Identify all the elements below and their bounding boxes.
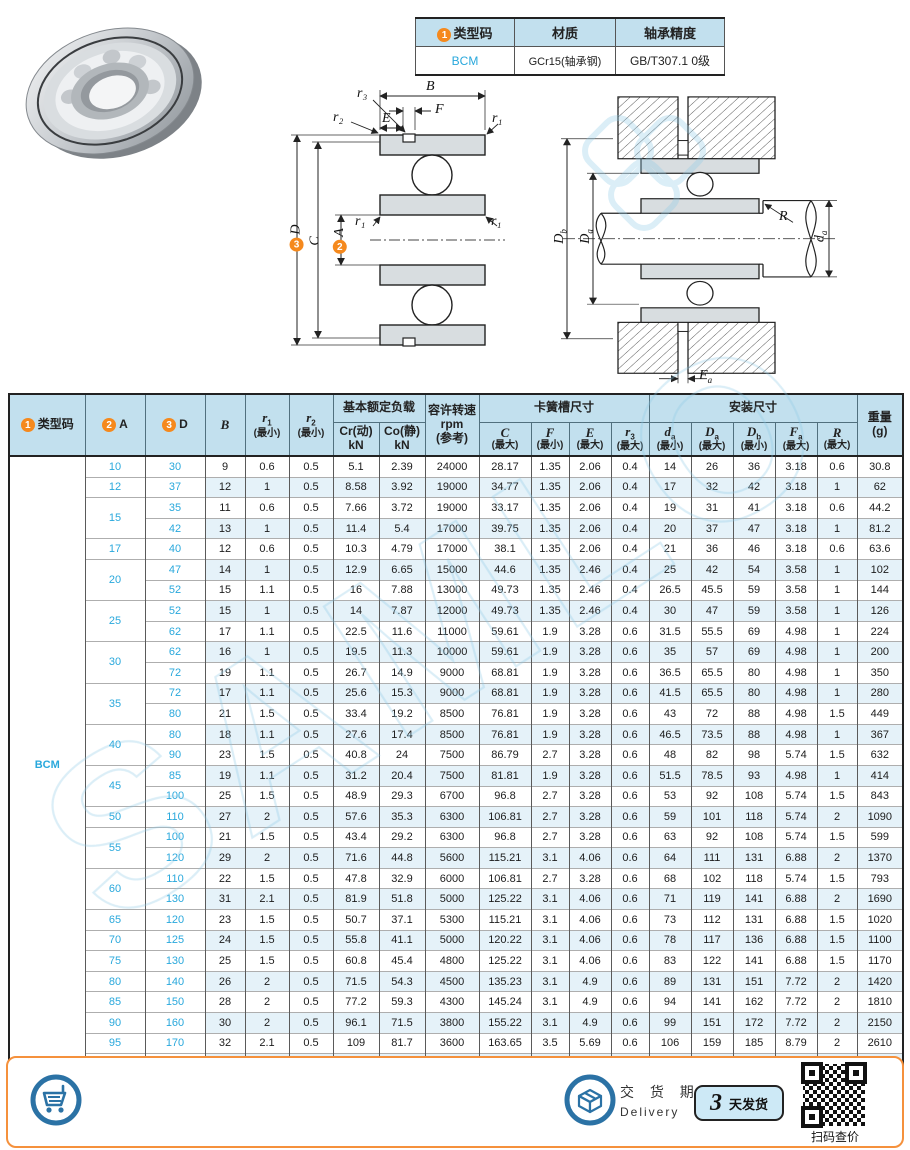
spec-value-cell: 4.9 [569, 992, 611, 1013]
spec-value-cell: 2.06 [569, 456, 611, 477]
spec-value-cell: 8.79 [775, 1033, 817, 1054]
spec-value-cell: 0.6 [611, 807, 649, 828]
spec-value-cell: 31.5 [649, 621, 691, 642]
spec-value-cell: 163.65 [479, 1033, 531, 1054]
spec-value-cell: 10.3 [333, 539, 379, 560]
dim-label-da: da [812, 231, 829, 243]
spec-value-cell: 3.28 [569, 765, 611, 786]
spec-header-cell: 卡簧槽尺寸 [479, 394, 649, 422]
col-a-cell: 50 [85, 807, 145, 828]
dim-label-Da: Da [578, 229, 595, 244]
spec-row: 70125241.50.555.841.15000120.223.14.060.… [9, 930, 903, 951]
spec-value-cell: 59 [733, 601, 775, 622]
spec-value-cell: 55.5 [691, 621, 733, 642]
spec-header-cell: 3D [145, 394, 205, 456]
info-typecode-value[interactable]: BCM [416, 47, 515, 76]
spec-row: 12371210.58.583.921900034.771.352.060.41… [9, 477, 903, 498]
spec-value-cell: 1.1 [245, 662, 289, 683]
spec-value-cell: 0.5 [289, 724, 333, 745]
spec-value-cell: 4.9 [569, 1013, 611, 1034]
col-a-cell: 10 [85, 456, 145, 477]
spec-value-cell: 1 [817, 642, 857, 663]
spec-value-cell: 69 [733, 621, 775, 642]
spec-value-cell: 77.2 [333, 992, 379, 1013]
spec-value-cell: 1 [245, 477, 289, 498]
spec-value-cell: 141 [733, 951, 775, 972]
spec-value-cell: 76.81 [479, 704, 531, 725]
spec-value-cell: 4.98 [775, 704, 817, 725]
spec-value-cell: 0.6 [611, 1033, 649, 1054]
spec-value-cell: 26.5 [649, 580, 691, 601]
spec-value-cell: 6000 [425, 868, 479, 889]
spec-value-cell: 1.9 [531, 642, 569, 663]
spec-value-cell: 162 [733, 992, 775, 1013]
spec-value-cell: 71.6 [333, 848, 379, 869]
spec-value-cell: 115.21 [479, 910, 531, 931]
spec-value-cell: 78 [649, 930, 691, 951]
spec-value-cell: 414 [857, 765, 903, 786]
spec-value-cell: 41.1 [379, 930, 425, 951]
spec-value-cell: 2.7 [531, 807, 569, 828]
spec-value-cell: 5000 [425, 889, 479, 910]
dim-label-E: E [382, 111, 391, 127]
spec-value-cell: 2.06 [569, 539, 611, 560]
spec-value-cell: 3.28 [569, 827, 611, 848]
spec-value-cell: 41 [733, 498, 775, 519]
spec-value-cell: 0.6 [817, 456, 857, 477]
col-a-cell: 75 [85, 951, 145, 972]
spec-value-cell: 24000 [425, 456, 479, 477]
spec-value-cell: 2.46 [569, 559, 611, 580]
spec-value-cell: 2.06 [569, 518, 611, 539]
dim-label-Db: Db [552, 229, 569, 244]
spec-value-cell: 59.3 [379, 992, 425, 1013]
spec-value-cell: 55.8 [333, 930, 379, 951]
spec-value-cell: 1.1 [245, 621, 289, 642]
spec-value-cell: 3.28 [569, 642, 611, 663]
spec-value-cell: 5000 [425, 930, 479, 951]
spec-value-cell: 131 [691, 971, 733, 992]
spec-value-cell: 6.88 [775, 951, 817, 972]
spec-value-cell: 32 [691, 477, 733, 498]
spec-value-cell: 30 [649, 601, 691, 622]
spec-value-cell: 0.6 [817, 498, 857, 519]
spec-value-cell: 7.72 [775, 992, 817, 1013]
spec-value-cell: 2150 [857, 1013, 903, 1034]
bearing-photo [12, 12, 208, 170]
spec-value-cell: 50.7 [333, 910, 379, 931]
spec-value-cell: 46.5 [649, 724, 691, 745]
spec-value-cell: 3.18 [775, 518, 817, 539]
spec-value-cell: 1 [245, 559, 289, 580]
col-d-cell: 37 [145, 477, 205, 498]
spec-row: 30621610.519.511.31000059.611.93.280.635… [9, 642, 903, 663]
spec-value-cell: 7.72 [775, 971, 817, 992]
spec-value-cell: 14 [333, 601, 379, 622]
col-a-cell: 80 [85, 971, 145, 992]
col-d-cell: 90 [145, 745, 205, 766]
spec-header-cell: E(最大) [569, 422, 611, 456]
spec-value-cell: 19 [205, 662, 245, 683]
spec-value-cell: 120.22 [479, 930, 531, 951]
spec-value-cell: 7.87 [379, 601, 425, 622]
spec-value-cell: 159 [691, 1033, 733, 1054]
spec-value-cell: 0.6 [611, 642, 649, 663]
spec-value-cell: 47.8 [333, 868, 379, 889]
spec-value-cell: 36.5 [649, 662, 691, 683]
spec-value-cell: 43 [649, 704, 691, 725]
spec-value-cell: 4300 [425, 992, 479, 1013]
spec-header-cell: 容许转速rpm(参考) [425, 394, 479, 456]
catalog-page: 1类型码 材质 轴承精度 BCM GCr15(轴承钢) GB/T307.1 0级 [0, 0, 910, 1150]
spec-value-cell: 35.3 [379, 807, 425, 828]
spec-value-cell: 0.5 [289, 704, 333, 725]
spec-value-cell: 1.35 [531, 518, 569, 539]
info-header-typecode: 1类型码 [416, 18, 515, 47]
spec-value-cell: 200 [857, 642, 903, 663]
spec-value-cell: 0.6 [245, 498, 289, 519]
spec-value-cell: 26 [691, 456, 733, 477]
spec-value-cell: 16 [205, 642, 245, 663]
spec-value-cell: 2 [817, 807, 857, 828]
delivery-en: Delivery [620, 1103, 700, 1121]
spec-value-cell: 0.6 [611, 621, 649, 642]
spec-header-cell: r1(最小) [245, 394, 289, 456]
spec-header-cell: da(最小) [649, 422, 691, 456]
spec-value-cell: 3.1 [531, 848, 569, 869]
spec-value-cell: 0.5 [289, 456, 333, 477]
spec-header-cell: F(最小) [531, 422, 569, 456]
spec-value-cell: 1 [245, 642, 289, 663]
spec-value-cell: 45.5 [691, 580, 733, 601]
spec-value-cell: 7.88 [379, 580, 425, 601]
spec-value-cell: 0.5 [289, 642, 333, 663]
spec-value-cell: 151 [691, 1013, 733, 1034]
spec-value-cell: 96.1 [333, 1013, 379, 1034]
spec-value-cell: 25 [649, 559, 691, 580]
spec-value-cell: 2.1 [245, 1033, 289, 1054]
spec-value-cell: 83 [649, 951, 691, 972]
spec-row: 25521510.5147.871200049.731.352.460.4304… [9, 601, 903, 622]
spec-value-cell: 2 [245, 971, 289, 992]
spec-row: 3572171.10.525.615.3900068.811.93.280.64… [9, 683, 903, 704]
spec-value-cell: 2.7 [531, 745, 569, 766]
spec-value-cell: 1 [817, 683, 857, 704]
col-d-cell: 120 [145, 910, 205, 931]
spec-value-cell: 29.3 [379, 786, 425, 807]
spec-value-cell: 108 [733, 827, 775, 848]
spec-value-cell: 5.74 [775, 745, 817, 766]
col-d-cell: 62 [145, 642, 205, 663]
spec-value-cell: 350 [857, 662, 903, 683]
spec-value-cell: 3.28 [569, 724, 611, 745]
spec-value-cell: 8500 [425, 704, 479, 725]
spec-value-cell: 14 [205, 559, 245, 580]
spec-value-cell: 5.1 [333, 456, 379, 477]
col-a-cell: 20 [85, 559, 145, 600]
delivery-days-value: 3 [710, 1090, 722, 1117]
spec-table: 1类型码2A3DBr1(最小)r2(最小)基本额定负载容许转速rpm(参考)卡簧… [8, 393, 904, 1076]
spec-value-cell: 106.81 [479, 807, 531, 828]
spec-value-cell: 59.61 [479, 642, 531, 663]
spec-value-cell: 122 [691, 951, 733, 972]
spec-value-cell: 26 [205, 971, 245, 992]
col-d-cell: 150 [145, 992, 205, 1013]
spec-value-cell: 4.98 [775, 765, 817, 786]
spec-value-cell: 88 [733, 704, 775, 725]
spec-value-cell: 0.5 [289, 992, 333, 1013]
spec-value-cell: 2.1 [245, 889, 289, 910]
spec-value-cell: 0.5 [289, 827, 333, 848]
spec-value-cell: 37.1 [379, 910, 425, 931]
spec-value-cell: 53 [649, 786, 691, 807]
spec-value-cell: 68 [649, 868, 691, 889]
installation-diagram-graphic [553, 86, 845, 386]
spec-value-cell: 2 [817, 1013, 857, 1034]
spec-value-cell: 6.65 [379, 559, 425, 580]
spec-value-cell: 71 [649, 889, 691, 910]
spec-value-cell: 36 [691, 539, 733, 560]
spec-value-cell: 0.4 [611, 539, 649, 560]
spec-value-cell: 64 [649, 848, 691, 869]
spec-value-cell: 78.5 [691, 765, 733, 786]
spec-row: 1535110.60.57.663.721900033.171.352.060.… [9, 498, 903, 519]
spec-value-cell: 2.7 [531, 786, 569, 807]
spec-row: 901603020.596.171.53800155.223.14.90.699… [9, 1013, 903, 1034]
col-d-cell: 100 [145, 827, 205, 848]
spec-value-cell: 0.5 [289, 745, 333, 766]
spec-row: 1740120.60.510.34.791700038.11.352.060.4… [9, 539, 903, 560]
spec-value-cell: 20 [649, 518, 691, 539]
col-d-cell: 62 [145, 621, 205, 642]
spec-value-cell: 1.5 [817, 930, 857, 951]
spec-value-cell: 0.5 [289, 910, 333, 931]
spec-value-cell: 81.9 [333, 889, 379, 910]
spec-value-cell: 125.22 [479, 951, 531, 972]
installation-diagram: Db Da da R Fa [553, 86, 845, 386]
spec-value-cell: 15 [205, 580, 245, 601]
col-d-cell: 85 [145, 765, 205, 786]
spec-value-cell: 94 [649, 992, 691, 1013]
spec-value-cell: 11.4 [333, 518, 379, 539]
spec-row: 75130251.50.560.845.44800125.223.14.060.… [9, 951, 903, 972]
spec-table-wrap: 1类型码2A3DBr1(最小)r2(最小)基本额定负载容许转速rpm(参考)卡簧… [8, 393, 904, 1076]
spec-value-cell: 72 [691, 704, 733, 725]
type-code-cell[interactable]: BCM [9, 456, 85, 1075]
spec-value-cell: 0.5 [289, 539, 333, 560]
spec-value-cell: 144 [857, 580, 903, 601]
spec-value-cell: 108 [733, 786, 775, 807]
spec-value-cell: 24 [379, 745, 425, 766]
spec-value-cell: 7.72 [775, 1013, 817, 1034]
spec-value-cell: 1.9 [531, 662, 569, 683]
spec-value-cell: 12 [205, 539, 245, 560]
spec-value-cell: 0.5 [289, 1013, 333, 1034]
spec-value-cell: 280 [857, 683, 903, 704]
col-a-cell: 95 [85, 1033, 145, 1054]
spec-header-cell: 重量(g) [857, 394, 903, 456]
spec-value-cell: 4.06 [569, 910, 611, 931]
qr-caption: 扫码查价 [795, 1128, 875, 1145]
spec-value-cell: 3.28 [569, 683, 611, 704]
spec-value-cell: 40.8 [333, 745, 379, 766]
spec-value-cell: 109 [333, 1033, 379, 1054]
col-d-cell: 40 [145, 539, 205, 560]
spec-value-cell: 1.5 [245, 910, 289, 931]
spec-value-cell: 19.2 [379, 704, 425, 725]
info-row: BCM GCr15(轴承钢) GB/T307.1 0级 [416, 47, 725, 76]
spec-value-cell: 92 [691, 786, 733, 807]
spec-value-cell: 27.6 [333, 724, 379, 745]
spec-row: 801402620.571.554.34500135.233.14.90.689… [9, 971, 903, 992]
spec-value-cell: 82 [691, 745, 733, 766]
col-a-cell: 70 [85, 930, 145, 951]
dim-label-R: R [779, 209, 788, 225]
spec-value-cell: 1.5 [245, 951, 289, 972]
spec-value-cell: 1.5 [245, 786, 289, 807]
col-d-cell: 120 [145, 848, 205, 869]
col-d-cell: 72 [145, 683, 205, 704]
spec-value-cell: 1.9 [531, 683, 569, 704]
spec-value-cell: 12.9 [333, 559, 379, 580]
spec-value-cell: 1.9 [531, 704, 569, 725]
spec-value-cell: 57.6 [333, 807, 379, 828]
spec-value-cell: 1.9 [531, 765, 569, 786]
spec-value-cell: 0.4 [611, 580, 649, 601]
spec-header-cell: Fa(最大) [775, 422, 817, 456]
spec-value-cell: 0.5 [289, 786, 333, 807]
spec-value-cell: 2.7 [531, 827, 569, 848]
spec-value-cell: 38.1 [479, 539, 531, 560]
spec-value-cell: 4.98 [775, 662, 817, 683]
col-a-cell: 65 [85, 910, 145, 931]
spec-value-cell: 0.6 [245, 539, 289, 560]
spec-value-cell: 6.88 [775, 848, 817, 869]
spec-value-cell: 1 [817, 765, 857, 786]
spec-value-cell: 30.8 [857, 456, 903, 477]
spec-value-cell: 1 [817, 724, 857, 745]
col-d-cell: 52 [145, 580, 205, 601]
spec-header-cell: 1类型码 [9, 394, 85, 456]
spec-value-cell: 93 [733, 765, 775, 786]
spec-value-cell: 172 [733, 1013, 775, 1034]
spec-value-cell: 15000 [425, 559, 479, 580]
spec-value-cell: 1 [817, 477, 857, 498]
spec-value-cell: 1370 [857, 848, 903, 869]
spec-value-cell: 3.1 [531, 992, 569, 1013]
spec-value-cell: 57 [691, 642, 733, 663]
spec-value-cell: 1 [817, 621, 857, 642]
spec-value-cell: 60.8 [333, 951, 379, 972]
spec-value-cell: 1.5 [245, 930, 289, 951]
marker-3-icon: 3 [290, 238, 304, 252]
spec-value-cell: 2.7 [531, 868, 569, 889]
spec-value-cell: 63 [649, 827, 691, 848]
info-material-value: GCr15(轴承钢) [515, 47, 616, 76]
spec-value-cell: 3.1 [531, 971, 569, 992]
spec-value-cell: 0.5 [289, 848, 333, 869]
spec-value-cell: 2.39 [379, 456, 425, 477]
spec-value-cell: 5600 [425, 848, 479, 869]
spec-value-cell: 80 [733, 662, 775, 683]
dim-label-r1-right: r₁ [491, 214, 501, 230]
col-d-cell: 80 [145, 724, 205, 745]
spec-value-cell: 0.5 [289, 662, 333, 683]
spec-value-cell: 11000 [425, 621, 479, 642]
spec-value-cell: 89 [649, 971, 691, 992]
spec-value-cell: 24 [205, 930, 245, 951]
spec-value-cell: 5.74 [775, 827, 817, 848]
col-a-cell: 15 [85, 498, 145, 539]
spec-value-cell: 102 [691, 868, 733, 889]
spec-value-cell: 2.46 [569, 601, 611, 622]
spec-value-cell: 59.61 [479, 621, 531, 642]
spec-value-cell: 3.28 [569, 868, 611, 889]
spec-value-cell: 8.58 [333, 477, 379, 498]
section-diagram: B F E r₃ r₂ r₁ r₁ r₁ 3D C 2A [285, 80, 515, 348]
spec-value-cell: 0.4 [611, 601, 649, 622]
spec-value-cell: 843 [857, 786, 903, 807]
spec-value-cell: 5.69 [569, 1033, 611, 1054]
spec-value-cell: 1.5 [817, 786, 857, 807]
spec-value-cell: 5300 [425, 910, 479, 931]
spec-value-cell: 106.81 [479, 868, 531, 889]
spec-header-cell: Cr(动)kN [333, 422, 379, 456]
spec-value-cell: 1.35 [531, 539, 569, 560]
spec-row: BCM103090.60.55.12.392400028.171.352.060… [9, 456, 903, 477]
spec-value-cell: 3.58 [775, 580, 817, 601]
spec-value-cell: 6.88 [775, 910, 817, 931]
spec-value-cell: 1020 [857, 910, 903, 931]
spec-value-cell: 3.5 [531, 1033, 569, 1054]
spec-row: 501102720.557.635.36300106.812.73.280.65… [9, 807, 903, 828]
dim-label-A: 2A [332, 228, 348, 254]
spec-value-cell: 1.35 [531, 477, 569, 498]
spec-value-cell: 126 [857, 601, 903, 622]
spec-value-cell: 3.18 [775, 456, 817, 477]
spec-value-cell: 14 [649, 456, 691, 477]
spec-value-cell: 0.5 [289, 951, 333, 972]
spec-value-cell: 1.1 [245, 580, 289, 601]
spec-value-cell: 1.1 [245, 765, 289, 786]
spec-value-cell: 4.98 [775, 621, 817, 642]
spec-value-cell: 3.58 [775, 559, 817, 580]
col-d-cell: 130 [145, 951, 205, 972]
spec-header-cell: Db(最小) [733, 422, 775, 456]
spec-value-cell: 0.6 [611, 848, 649, 869]
spec-value-cell: 793 [857, 868, 903, 889]
spec-value-cell: 6300 [425, 807, 479, 828]
spec-value-cell: 49.73 [479, 580, 531, 601]
spec-value-cell: 12 [205, 477, 245, 498]
spec-value-cell: 27 [205, 807, 245, 828]
spec-value-cell: 15 [205, 601, 245, 622]
spec-value-cell: 6700 [425, 786, 479, 807]
col-d-cell: 140 [145, 971, 205, 992]
spec-value-cell: 88 [733, 724, 775, 745]
spec-value-cell: 136 [733, 930, 775, 951]
spec-value-cell: 0.6 [611, 889, 649, 910]
spec-value-cell: 34.77 [479, 477, 531, 498]
col-d-cell: 47 [145, 559, 205, 580]
spec-value-cell: 1420 [857, 971, 903, 992]
spec-row: 60110221.50.547.832.96000106.812.73.280.… [9, 868, 903, 889]
spec-value-cell: 3.92 [379, 477, 425, 498]
col-a-cell: 40 [85, 724, 145, 765]
spec-value-cell: 0.5 [289, 498, 333, 519]
spec-value-cell: 1 [817, 662, 857, 683]
spec-value-cell: 1 [817, 580, 857, 601]
